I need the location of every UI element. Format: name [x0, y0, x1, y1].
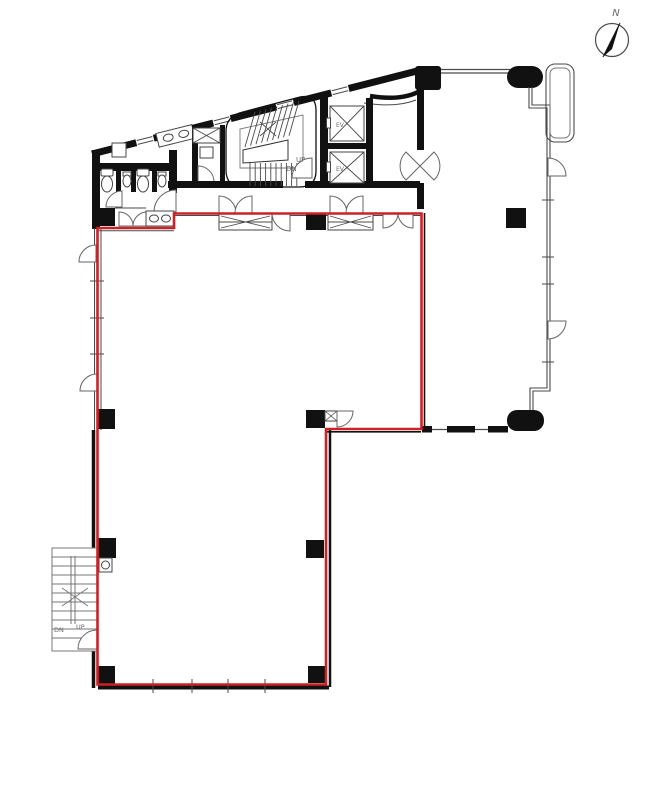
- closet-fixture: [112, 143, 126, 157]
- structural-column: [306, 213, 326, 230]
- toilet-bowl: [138, 176, 149, 192]
- structural-column: [306, 540, 324, 558]
- floor-plan-svg: UP DN EV EV: [0, 0, 672, 800]
- door-arc: [398, 213, 413, 228]
- structural-column: [507, 410, 544, 431]
- stair-down-label: DN: [286, 165, 297, 173]
- right-exterior-wall: [529, 87, 547, 413]
- elevator-2: EV: [327, 152, 365, 183]
- structural-column: [98, 409, 115, 429]
- shutter-box: [328, 214, 373, 230]
- tenant-area: [79, 228, 353, 693]
- curved-corridor-wall: [370, 92, 418, 98]
- door-arc: [272, 213, 290, 231]
- entrance-door-arc: [219, 196, 236, 213]
- floor-plan-page: UP DN EV EV: [0, 0, 672, 800]
- structural-column: [507, 66, 543, 88]
- door-arc: [548, 158, 566, 176]
- structural-column: [306, 410, 325, 428]
- urinal: [123, 175, 131, 187]
- external-stair-down-label: DN: [54, 626, 64, 634]
- external-stair-up-label: UP: [76, 623, 85, 631]
- structural-column: [415, 66, 441, 90]
- lease-boundary: [98, 214, 422, 685]
- door-arc: [79, 245, 96, 262]
- toilet-tank: [137, 169, 149, 176]
- compass: N: [596, 8, 629, 57]
- urinal: [158, 175, 166, 187]
- elevator-label: EV: [336, 166, 345, 173]
- structural-column: [308, 666, 326, 683]
- external-stair: DN UP: [52, 548, 97, 651]
- structural-column: [98, 538, 116, 558]
- door-arc: [133, 212, 147, 226]
- entrance-door-arc: [235, 196, 252, 213]
- sink-counter: [156, 125, 195, 148]
- door-arc: [548, 321, 566, 339]
- toilet-tank: [101, 169, 113, 176]
- entrance-door-arc: [346, 196, 363, 213]
- door-arc: [383, 213, 398, 228]
- stair-landing: [243, 140, 288, 163]
- double-acting-door: [400, 152, 420, 180]
- right-room-left-wall: [417, 88, 424, 150]
- double-acting-door: [420, 152, 440, 180]
- elevator-bank: EV EV: [320, 96, 373, 188]
- central-stairwell: UP DN: [226, 97, 316, 187]
- door-arc: [106, 191, 122, 207]
- door-arc: [337, 411, 353, 427]
- door-arc: [154, 190, 176, 212]
- structural-column: [506, 208, 526, 228]
- door-arc: [80, 374, 97, 391]
- slant-window: [330, 83, 350, 98]
- toilet-bowl: [102, 176, 113, 192]
- elevator-door: [327, 118, 331, 128]
- pipe-shaft-room: [192, 125, 225, 185]
- structural-column: [98, 666, 115, 684]
- north-label: N: [612, 8, 620, 19]
- elevator-1: EV: [327, 106, 365, 141]
- elevator-label: EV: [336, 122, 345, 129]
- door-arc: [198, 166, 214, 182]
- balcony-inner: [550, 68, 570, 138]
- entrance-door-arc: [330, 196, 347, 213]
- slant-window: [135, 133, 155, 148]
- door-arc: [119, 212, 133, 226]
- elevator-door: [327, 162, 331, 172]
- stair-up-label: UP: [296, 156, 305, 164]
- shutter-box: [219, 214, 272, 230]
